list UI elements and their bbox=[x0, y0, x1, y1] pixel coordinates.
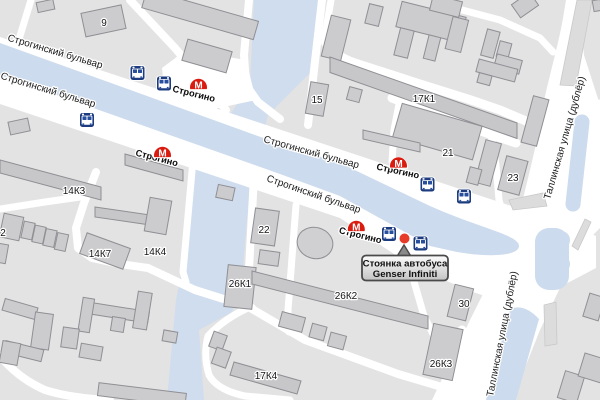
svg-text:26К3: 26К3 bbox=[430, 359, 453, 370]
svg-text:14К7: 14К7 bbox=[89, 249, 112, 260]
svg-text:22: 22 bbox=[258, 225, 270, 236]
svg-text:2: 2 bbox=[0, 228, 6, 239]
svg-text:21: 21 bbox=[442, 148, 454, 159]
svg-text:Стоянка автобуса: Стоянка автобуса bbox=[363, 259, 448, 270]
svg-text:26К2: 26К2 bbox=[335, 291, 358, 302]
svg-text:Genser Infiniti: Genser Infiniti bbox=[373, 269, 438, 280]
svg-text:9: 9 bbox=[101, 18, 107, 29]
svg-text:14К3: 14К3 bbox=[63, 186, 86, 197]
svg-text:26К1: 26К1 bbox=[229, 279, 252, 290]
svg-text:14К4: 14К4 bbox=[144, 247, 167, 258]
svg-text:15: 15 bbox=[311, 95, 323, 106]
svg-text:17К4: 17К4 bbox=[255, 371, 278, 382]
svg-text:23: 23 bbox=[507, 173, 519, 184]
svg-text:17К1: 17К1 bbox=[413, 94, 436, 105]
svg-text:30: 30 bbox=[458, 299, 470, 310]
